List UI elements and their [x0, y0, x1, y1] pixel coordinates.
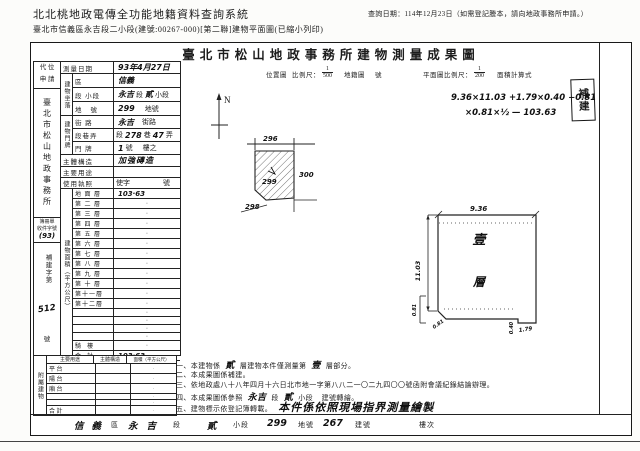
floor-value: ·: [114, 341, 180, 350]
plan-scale-label: 平面圖比例尺：: [423, 69, 472, 79]
floor-label: [73, 317, 114, 324]
floor-label: 第十一層: [73, 289, 114, 298]
floor-row-blank-4: ·: [73, 333, 180, 341]
floor-label: 地 面 層: [73, 189, 114, 198]
floor-row-7: 第 七 層·: [73, 249, 180, 259]
floor-label: [73, 325, 114, 332]
lot-label: 地 號: [73, 102, 114, 115]
attached-area: ·: [131, 400, 176, 405]
building-location-group-label: 建物坐落: [61, 74, 73, 115]
floor-row-blank-2: ·: [73, 317, 180, 325]
main-use-row: 主要用途: [61, 167, 180, 178]
floor-plan: 壹 層 9.36 11.03 0.81 0.81 0.40 1.79: [406, 196, 556, 341]
floor-label: 第 三 層: [73, 209, 114, 218]
attached-header-row: 主要用途 主體構造 面積（平方公尺）: [47, 356, 176, 364]
subject-parcel-shape: [255, 151, 294, 200]
area-calc-label: 面積計算式: [497, 69, 532, 79]
building-fields-table: 代 位申 請 臺北市松山地政事務所 簿冊單 收件字號 (93) 補建字第 512…: [33, 61, 181, 356]
attached-row-annex: 廂 台·: [47, 384, 176, 394]
license-row: 使用執照 使字號: [61, 178, 180, 189]
lane-label: 段巷弄: [73, 129, 114, 141]
district-row: 區 信義: [73, 74, 180, 88]
attached-use: [47, 400, 96, 405]
floor-label: 第 九 層: [73, 269, 114, 278]
attached-group-label: 附屬建物: [34, 356, 47, 415]
query-date: 查詢日期：114年12月23日（如需登記謄本，請向地政事務所申請。）: [368, 9, 588, 19]
floor-row-blank-1: ·: [73, 309, 180, 317]
area-calculation-line1: 9.36×11.03 +1.79×0.40 −0.81: [451, 93, 596, 103]
footer-district-value: 信義: [74, 418, 109, 432]
door-plate-group: 建物門牌 街 路 永吉街路 段巷弄 段278巷47弄 門 牌 1號樓之: [61, 116, 180, 155]
lot-suffix: 地號: [145, 104, 159, 114]
plan-cut-dimension-diag: 0.81: [432, 319, 446, 331]
cadastral-map-label: 地籍圖: [344, 69, 365, 79]
scale-denominator: 500: [322, 73, 333, 79]
street-label: 街 路: [73, 116, 114, 128]
inner-vertical-rule: [599, 43, 600, 414]
attached-use: 陽 台: [47, 374, 96, 383]
footer-lot-value: 299: [267, 418, 287, 429]
floor-row-2: 第 二 層·: [73, 199, 180, 209]
attached-structure: [96, 364, 131, 373]
note1-hw-measured-floor: 壹: [311, 361, 320, 371]
booklet-receipt-block: 簿冊單 收件字號 (93): [34, 217, 60, 243]
area-calculation-line2: ×0.81×½ — 103.63: [465, 108, 556, 118]
structure-row: 主體構造 加強磚造: [61, 155, 180, 167]
attached-area: ·: [131, 364, 176, 373]
note-line-5: 五、建物標示依登記簿轉載。本件係依照現場指界測量繪製: [176, 399, 436, 415]
license-label: 使用執照: [61, 178, 114, 188]
main-use-label: 主要用途: [61, 167, 114, 177]
floor-row-4: 第 四 層·: [73, 219, 180, 229]
agency-request-label: 代 位申 請: [34, 62, 60, 89]
plan-top-dimension: 9.36: [470, 205, 487, 213]
section-row: 段 小段 永吉段貳小段: [73, 88, 180, 102]
attached-structure: [96, 384, 131, 393]
plan-tab-dimension-height: 0.40: [509, 321, 515, 334]
door-print-1: 號: [126, 143, 133, 153]
floor-value: ·: [114, 269, 180, 278]
plan-scale-denominator: 200: [474, 73, 485, 79]
floor-label: [73, 333, 114, 340]
note1-pre: 一、本建物係: [176, 362, 220, 370]
section-print-2: 小段: [155, 90, 169, 100]
plan-scale-fraction: 1200: [474, 66, 485, 79]
footer-building-value: 267: [323, 418, 343, 429]
note5-handwritten-annotation: 本件係依照現場指界測量繪製: [276, 401, 436, 415]
floor-value: 103·63: [114, 189, 180, 198]
floor-value: ·: [114, 309, 180, 316]
location-sketch: N 296 299 300 298: [211, 87, 341, 222]
cadastral-no-label: 號: [375, 69, 382, 79]
lot-298-label: 298: [245, 203, 260, 211]
footer-section-label: 段: [173, 420, 181, 430]
note-line-2: 二、本成果圖係補建。: [176, 370, 250, 380]
case-prefix: 補建字第: [42, 254, 52, 284]
lane-value-hw1: 278: [125, 131, 142, 140]
floor-value: ·: [114, 219, 180, 228]
attached-header-structure: 主體構造: [94, 356, 127, 363]
lot-row: 地 號 299地號: [73, 102, 180, 115]
floor-area-rows: 地 面 層103·63 第 二 層· 第 三 層· 第 四 層· 第 五 層· …: [73, 189, 180, 360]
floor-area-group-label: 建物面積（平方公尺）: [61, 189, 73, 360]
note5-pre: 五、建物標示依登記簿轉載。: [176, 405, 272, 413]
lot-300-label: 300: [299, 171, 314, 179]
floor-row-ground: 地 面 層103·63: [73, 189, 180, 199]
plan-cut-dimension-side: 0.81: [412, 304, 418, 316]
floor-row-11: 第十一層·: [73, 289, 180, 299]
page-bottom-rule: [0, 441, 640, 442]
lane-value-hw2: 47: [153, 131, 164, 140]
floor-value: ·: [114, 299, 180, 308]
case-suffix: 號: [44, 333, 51, 343]
floor-row-blank-3: ·: [73, 325, 180, 333]
structure-value: 加強磚造: [118, 155, 154, 166]
building-location-group: 建物坐落 區 信義 段 小段 永吉段貳小段 地 號 299地號: [61, 74, 180, 116]
door-number-value: 1: [118, 144, 124, 153]
survey-date-label: 測量日期: [61, 62, 114, 73]
floor-label: 第 二 層: [73, 199, 114, 208]
lot-number-value: 299: [118, 104, 135, 113]
floor-label: 騎 樓: [73, 341, 114, 350]
floor-row-10: 第 十 層·: [73, 279, 180, 289]
scale-numerator: 1: [322, 66, 333, 73]
system-title: 北北桃地政電傳全功能地籍資料查詢系統: [33, 6, 249, 22]
main-use-value: [114, 167, 180, 177]
footer-district-label: 區: [111, 420, 119, 430]
street-value: 永吉: [118, 117, 134, 128]
north-label: N: [224, 95, 231, 105]
note1-mid: 層建物本件僅測量第: [240, 362, 307, 370]
agency-request-line2: 申 請: [40, 76, 55, 83]
floor-value: ·: [114, 325, 180, 332]
floor-label: [73, 309, 114, 316]
floor-label: 第 十 層: [73, 279, 114, 288]
attached-structure: [96, 374, 131, 383]
lane-print-3: 弄: [166, 130, 173, 140]
structure-label: 主體構造: [61, 155, 114, 166]
table-fields-column: 測量日期 93年4月27日 建物坐落 區 信義 段 小段 永吉段貳小段 地 號: [61, 62, 180, 355]
floor-value: ·: [114, 199, 180, 208]
agency-request-line1: 代 位: [40, 64, 55, 71]
attached-structure: [96, 394, 131, 399]
plan-scale-numerator: 1: [474, 66, 485, 73]
floor-area-group: 建物面積（平方公尺） 地 面 層103·63 第 二 層· 第 三 層· 第 四…: [61, 189, 180, 361]
survey-date-value: 93年4月27日: [118, 62, 170, 73]
footer-subsection-value: 貳: [207, 418, 217, 432]
floor-value: ·: [114, 317, 180, 324]
floor-row-5: 第 五 層·: [73, 229, 180, 239]
floor-value: ·: [114, 259, 180, 268]
floor-value: ·: [114, 209, 180, 218]
floor-row-9: 第 九 層·: [73, 269, 180, 279]
section-value-hw1: 永吉: [118, 89, 134, 100]
floor-label: 第 四 層: [73, 219, 114, 228]
floor-value: ·: [114, 279, 180, 288]
attached-structure: [96, 400, 131, 405]
floor-row-6: 第 六 層·: [73, 239, 180, 249]
plan-left-dimension: 11.03: [414, 260, 422, 281]
note1-post: 層部分。: [326, 362, 356, 370]
section-value-hw2: 貳: [145, 89, 153, 100]
attached-row-balcony: 陽 台·: [47, 374, 176, 384]
license-print-1: 使字: [116, 178, 130, 188]
door-print-2: 樓之: [143, 143, 157, 153]
district-value: 信義: [118, 75, 134, 86]
footer-building-label: 建號: [355, 420, 371, 430]
street-suffix: 街路: [142, 117, 156, 127]
lane-print-1: 段: [116, 130, 123, 140]
floor-label: 第 五 層: [73, 229, 114, 238]
floor-label: 第 八 層: [73, 259, 114, 268]
survey-document: 臺北市松山地政事務所建物測量成果圖 位置圖 比例尺： 1500 地籍圖 號 平面…: [30, 42, 632, 436]
attached-area: ·: [131, 384, 176, 393]
lane-row: 段巷弄 段278巷47弄: [73, 129, 180, 142]
section-label: 段 小段: [73, 88, 114, 101]
floor-value: ·: [114, 333, 180, 340]
floor-value: ·: [114, 239, 180, 248]
location-map-label: 位置圖: [266, 69, 287, 79]
plan-tab-dimension-width: 1.79: [518, 326, 532, 334]
floor-label: 第 六 層: [73, 239, 114, 248]
attached-use: 平 台: [47, 364, 96, 373]
section-print-1: 段: [136, 90, 143, 100]
attached-use: 廂 台: [47, 384, 96, 393]
floor-value: ·: [114, 229, 180, 238]
table-left-column: 代 位申 請 臺北市松山地政事務所 簿冊單 收件字號 (93) 補建字第 512…: [34, 62, 61, 355]
scale-label: 比例尺：: [292, 69, 320, 79]
floor-plan-outline: [438, 215, 536, 323]
floor-row-12: 第十二層·: [73, 299, 180, 309]
document-subtitle: 臺北市信義區永吉段二小段(建號:00267-000)[第二聯]建物平面圖(已縮小…: [33, 24, 323, 35]
case-number: 512: [38, 303, 57, 315]
floor-row-8: 第 八 層·: [73, 259, 180, 269]
survey-date-row: 測量日期 93年4月27日: [61, 62, 180, 74]
footer-lot-label: 地號: [298, 420, 314, 430]
footer-floor-label: 樓次: [419, 420, 435, 430]
floor-value: ·: [114, 289, 180, 298]
attached-use: [47, 394, 96, 399]
floor-row-3: 第 三 層·: [73, 209, 180, 219]
attached-header-area: 面積（平方公尺）: [127, 356, 176, 363]
floor-char-1: 壹: [472, 232, 488, 248]
district-label: 區: [73, 74, 114, 87]
floor-label: 第十二層: [73, 299, 114, 308]
attached-row-terrace: 平 台·: [47, 364, 176, 374]
note-line-3: 三、依地政處八十八年四月十六日北市地一字第八八二一〇二九四〇〇號函附會議紀錄結論…: [176, 380, 494, 390]
door-plate-group-label: 建物門牌: [61, 116, 73, 154]
footer-subsection-label: 小段: [233, 420, 249, 430]
lane-print-2: 巷: [144, 130, 151, 140]
attached-header-use: 主要用途: [47, 356, 94, 363]
footer-section-value: 永吉: [128, 418, 165, 432]
lot-296-label: 296: [263, 135, 278, 143]
door-number-label: 門 牌: [73, 142, 114, 154]
case-number-block: 補建字第 512 號: [34, 243, 60, 356]
floor-char-2: 層: [472, 275, 487, 289]
floor-label: 第 七 層: [73, 249, 114, 258]
door-number-row: 門 牌 1號樓之: [73, 142, 180, 154]
lot-299-label: 299: [262, 178, 277, 186]
footer-divider-rule: [31, 414, 631, 415]
attached-area: ·: [131, 394, 176, 399]
office-name-vertical: 臺北市松山地政事務所: [34, 89, 60, 217]
floor-value: ·: [114, 249, 180, 258]
scale-fraction: 1500: [322, 66, 333, 79]
street-row: 街 路 永吉街路: [73, 116, 180, 129]
arcade-row: 騎 樓·: [73, 341, 180, 351]
booklet-number: (93): [34, 233, 60, 240]
attached-building-table: 附屬建物 主要用途 主體構造 面積（平方公尺） 平 台· 陽 台· 廂 台· ·…: [33, 355, 177, 416]
attached-area: ·: [131, 374, 176, 383]
license-print-2: 號: [163, 178, 170, 188]
